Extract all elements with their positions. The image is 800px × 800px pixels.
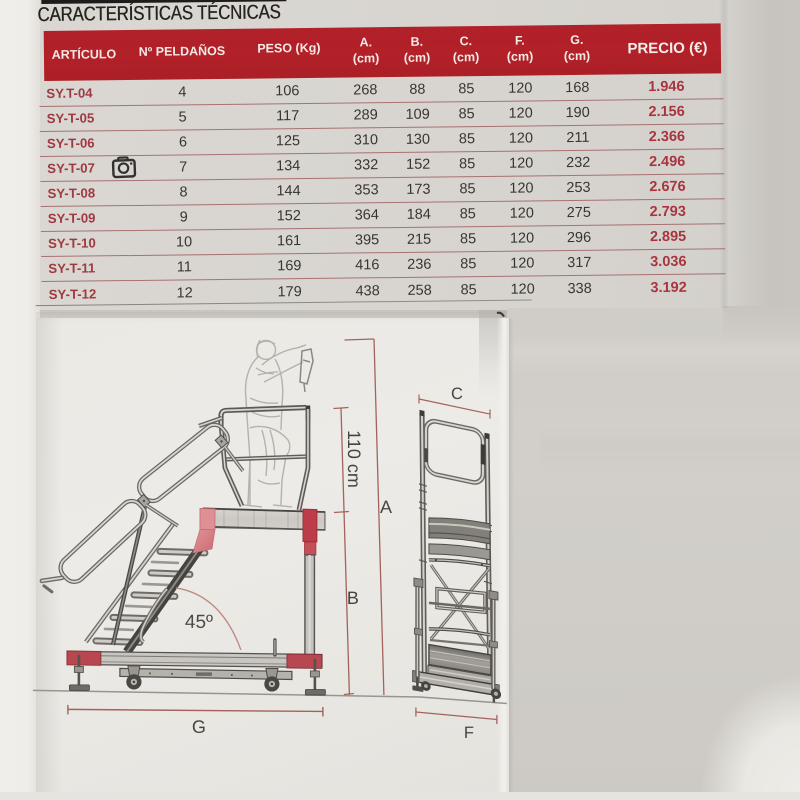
- svg-text:C: C: [451, 385, 463, 403]
- svg-text:110 cm: 110 cm: [344, 430, 364, 488]
- svg-text:G: G: [192, 717, 206, 737]
- svg-text:A: A: [380, 497, 392, 517]
- svg-text:B: B: [347, 588, 359, 608]
- svg-text:45º: 45º: [185, 612, 213, 633]
- svg-text:F: F: [464, 724, 474, 742]
